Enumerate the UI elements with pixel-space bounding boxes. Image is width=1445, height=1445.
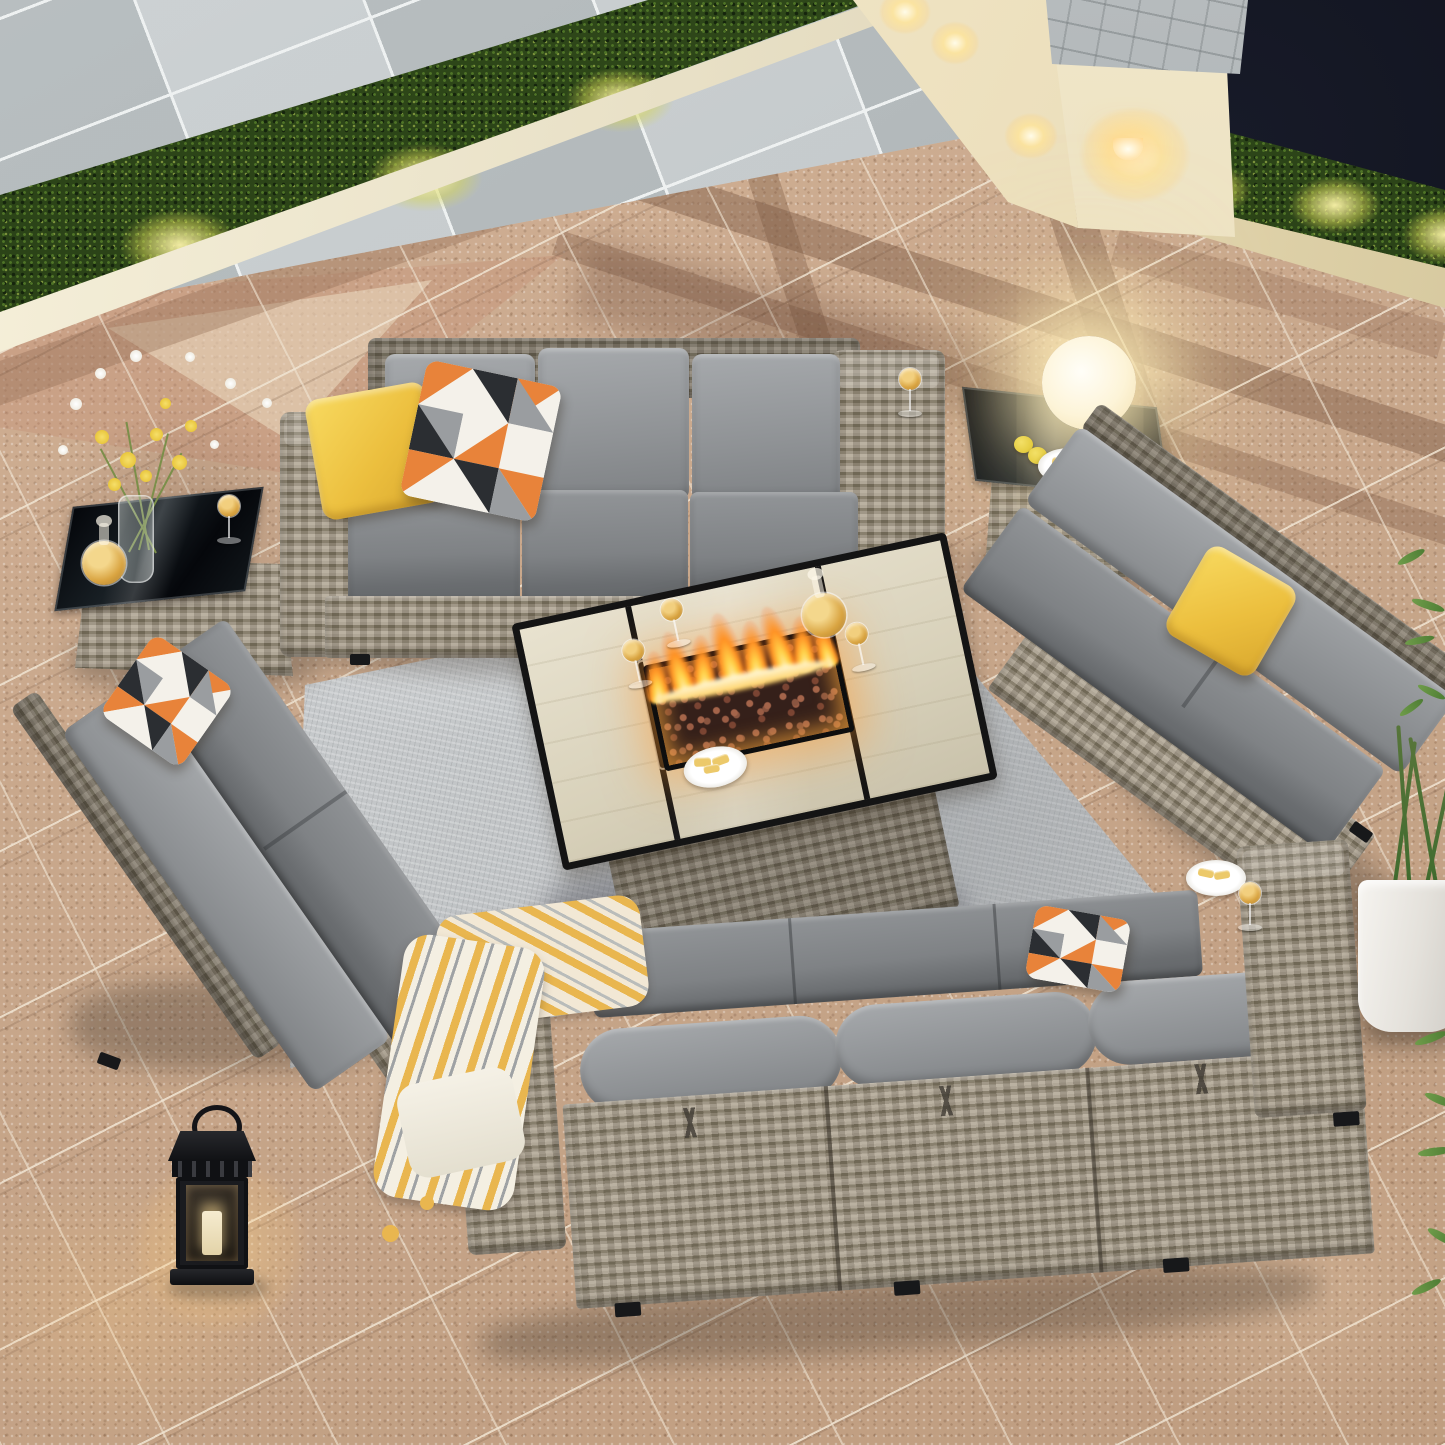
bottom-sofa [432, 781, 1383, 1324]
wall-uplight [922, 14, 988, 72]
geometric-pillow [399, 359, 563, 523]
candle-lantern [160, 1105, 265, 1305]
blanket-pompom [420, 1196, 434, 1210]
lantern-body [176, 1177, 248, 1269]
wall-uplight [995, 105, 1067, 167]
blanket-pompom [382, 1225, 399, 1242]
wine-decanter [82, 515, 128, 585]
wine-glass [215, 495, 243, 547]
cushion-tie [666, 1106, 714, 1139]
cushion-tie [1177, 1062, 1225, 1095]
lantern-cornice [172, 1161, 252, 1177]
back-cushion [538, 348, 689, 500]
patio-scene [0, 0, 1445, 1445]
wine-glass [1236, 882, 1264, 934]
wine-glass [896, 368, 924, 420]
planter-pot [1358, 880, 1445, 1032]
lantern-candle [202, 1211, 222, 1255]
lantern-glass [186, 1185, 238, 1261]
back-cushion [692, 354, 840, 502]
lantern-base [170, 1269, 254, 1285]
cushion-tie [922, 1084, 970, 1117]
lantern-roof [168, 1131, 256, 1161]
decanter-stopper [96, 515, 112, 527]
decanter-body [82, 541, 126, 585]
